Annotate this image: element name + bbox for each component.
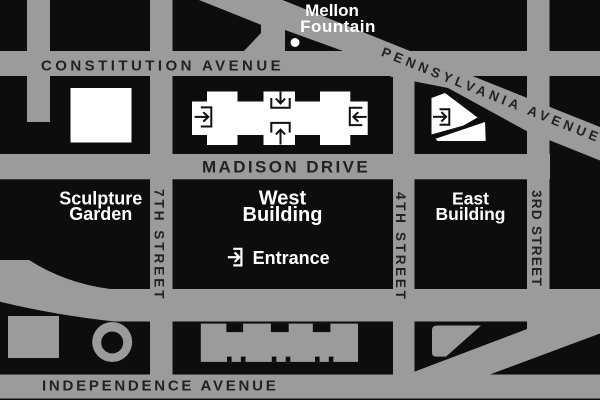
svg-text:MADISON DRIVE: MADISON DRIVE [202, 158, 370, 177]
svg-text:Building: Building [243, 204, 323, 226]
svg-text:INDEPENDENCE AVENUE: INDEPENDENCE AVENUE [42, 378, 278, 395]
svg-text:Building: Building [436, 204, 506, 224]
svg-text:Garden: Garden [69, 204, 132, 224]
svg-text:7TH STREET: 7TH STREET [152, 189, 167, 302]
svg-text:3RD STREET: 3RD STREET [529, 190, 544, 287]
svg-text:Fountain: Fountain [300, 17, 376, 36]
svg-text:Entrance: Entrance [253, 248, 330, 268]
svg-text:4TH STREET: 4TH STREET [393, 192, 408, 302]
svg-text:CONSTITUTION AVENUE: CONSTITUTION AVENUE [41, 58, 284, 75]
